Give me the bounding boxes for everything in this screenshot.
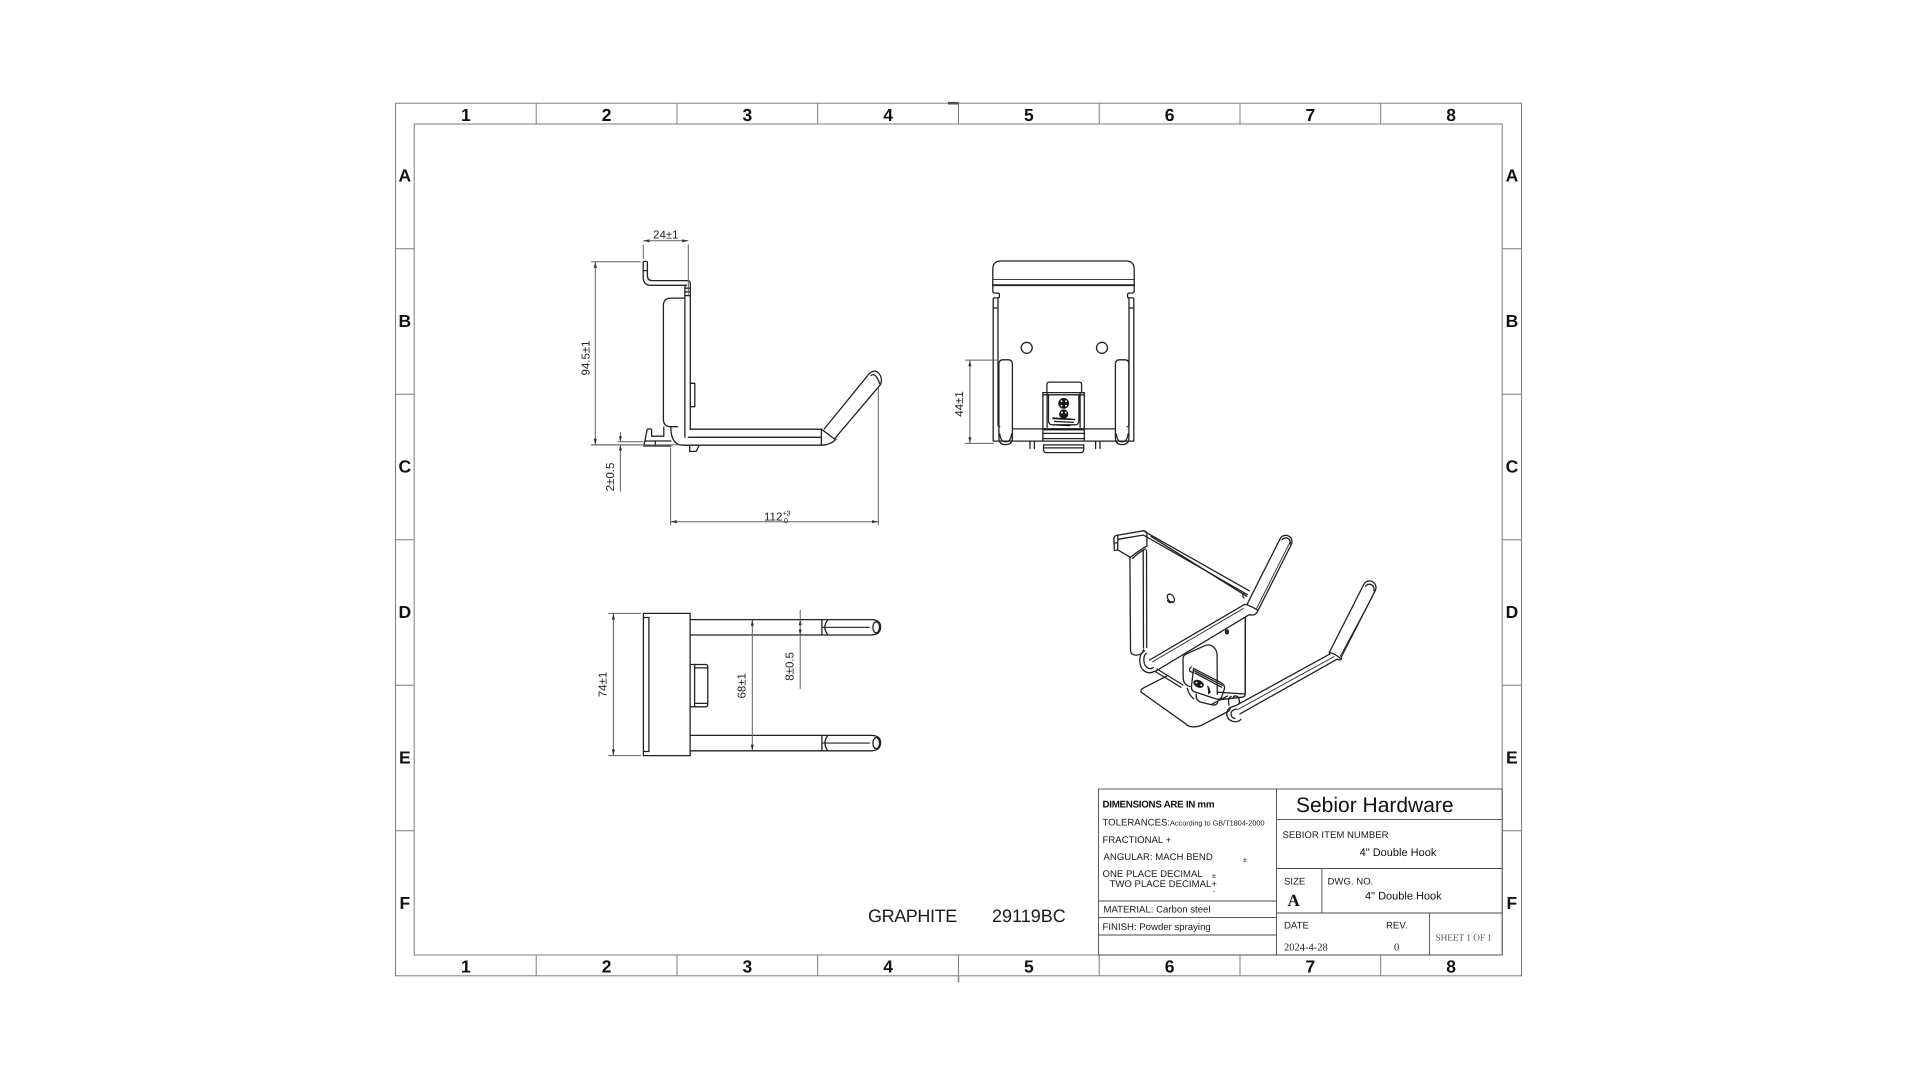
svg-text:B: B: [398, 311, 411, 331]
svg-text:DWG. NO.: DWG. NO.: [1328, 877, 1374, 888]
svg-text:2024-4-28: 2024-4-28: [1284, 943, 1328, 954]
svg-text:24±1: 24±1: [653, 229, 679, 241]
svg-text:B: B: [1506, 311, 1519, 331]
svg-text:TOLERANCES:According to GB/T18: TOLERANCES:According to GB/T1804-2000: [1103, 818, 1265, 829]
svg-text:A: A: [1288, 891, 1301, 910]
svg-text:0: 0: [1394, 943, 1399, 954]
svg-text:D: D: [1506, 602, 1519, 622]
svg-text:A: A: [398, 166, 411, 186]
svg-text:8: 8: [1446, 105, 1456, 125]
svg-text:DIMENSIONS ARE IN mm: DIMENSIONS ARE IN mm: [1103, 800, 1215, 811]
svg-text:E: E: [1506, 748, 1518, 768]
svg-text:±: ±: [1243, 857, 1247, 864]
svg-text:5: 5: [1024, 105, 1034, 125]
svg-text:5: 5: [1024, 957, 1034, 977]
svg-text:8: 8: [1446, 957, 1456, 977]
svg-text:3: 3: [743, 105, 753, 125]
svg-text:+3: +3: [783, 511, 791, 518]
svg-text:74±1: 74±1: [598, 672, 610, 698]
svg-text:TWO PLACE DECIMAL+: TWO PLACE DECIMAL+: [1110, 879, 1218, 890]
svg-text:C: C: [398, 457, 411, 477]
svg-text:F: F: [399, 893, 410, 913]
svg-text:6: 6: [1165, 105, 1175, 125]
svg-text:C: C: [1506, 457, 1519, 477]
svg-text:4" Double Hook: 4" Double Hook: [1365, 891, 1442, 903]
svg-text:4: 4: [883, 957, 893, 977]
svg-text:Sebior Hardware: Sebior Hardware: [1296, 794, 1454, 817]
svg-text:7: 7: [1306, 105, 1316, 125]
svg-text:FRACTIONAL +: FRACTIONAL +: [1103, 835, 1172, 846]
svg-text:68±1: 68±1: [737, 673, 749, 699]
svg-text:ANGULAR: MACH BEND: ANGULAR: MACH BEND: [1104, 852, 1213, 863]
svg-text:MATERIAL: Carbon steel: MATERIAL: Carbon steel: [1104, 905, 1211, 916]
svg-text:SEBIOR ITEM NUMBER: SEBIOR ITEM NUMBER: [1283, 830, 1389, 841]
svg-text:112: 112: [764, 511, 782, 523]
svg-text:2: 2: [602, 957, 612, 977]
svg-text:94.5±1: 94.5±1: [581, 340, 593, 375]
svg-text:8±0.5: 8±0.5: [785, 652, 797, 681]
svg-text:4" Double Hook: 4" Double Hook: [1360, 847, 1437, 859]
svg-text:29119BC: 29119BC: [992, 906, 1066, 926]
svg-text:2: 2: [602, 105, 612, 125]
svg-text:A: A: [1506, 166, 1519, 186]
svg-text:6: 6: [1165, 957, 1175, 977]
svg-text:1: 1: [461, 105, 471, 125]
svg-text:F: F: [1507, 893, 1518, 913]
svg-text:SHEET 1 OF 1: SHEET 1 OF 1: [1436, 933, 1493, 943]
svg-text:DATE: DATE: [1284, 921, 1309, 932]
svg-text:D: D: [398, 602, 411, 622]
svg-text:4: 4: [883, 105, 893, 125]
svg-text:FINISH: Powder spraying: FINISH: Powder spraying: [1103, 922, 1211, 933]
svg-text:GRAPHITE: GRAPHITE: [868, 906, 957, 926]
svg-text:3: 3: [743, 957, 753, 977]
svg-text:SIZE: SIZE: [1284, 877, 1305, 888]
svg-text:REV.: REV.: [1386, 921, 1408, 932]
svg-text:2±0.5: 2±0.5: [605, 463, 617, 492]
svg-text:7: 7: [1306, 957, 1316, 977]
svg-text:E: E: [399, 748, 411, 768]
svg-text:44±1: 44±1: [954, 391, 966, 417]
svg-text:0: 0: [784, 518, 788, 525]
svg-text:1: 1: [461, 957, 471, 977]
